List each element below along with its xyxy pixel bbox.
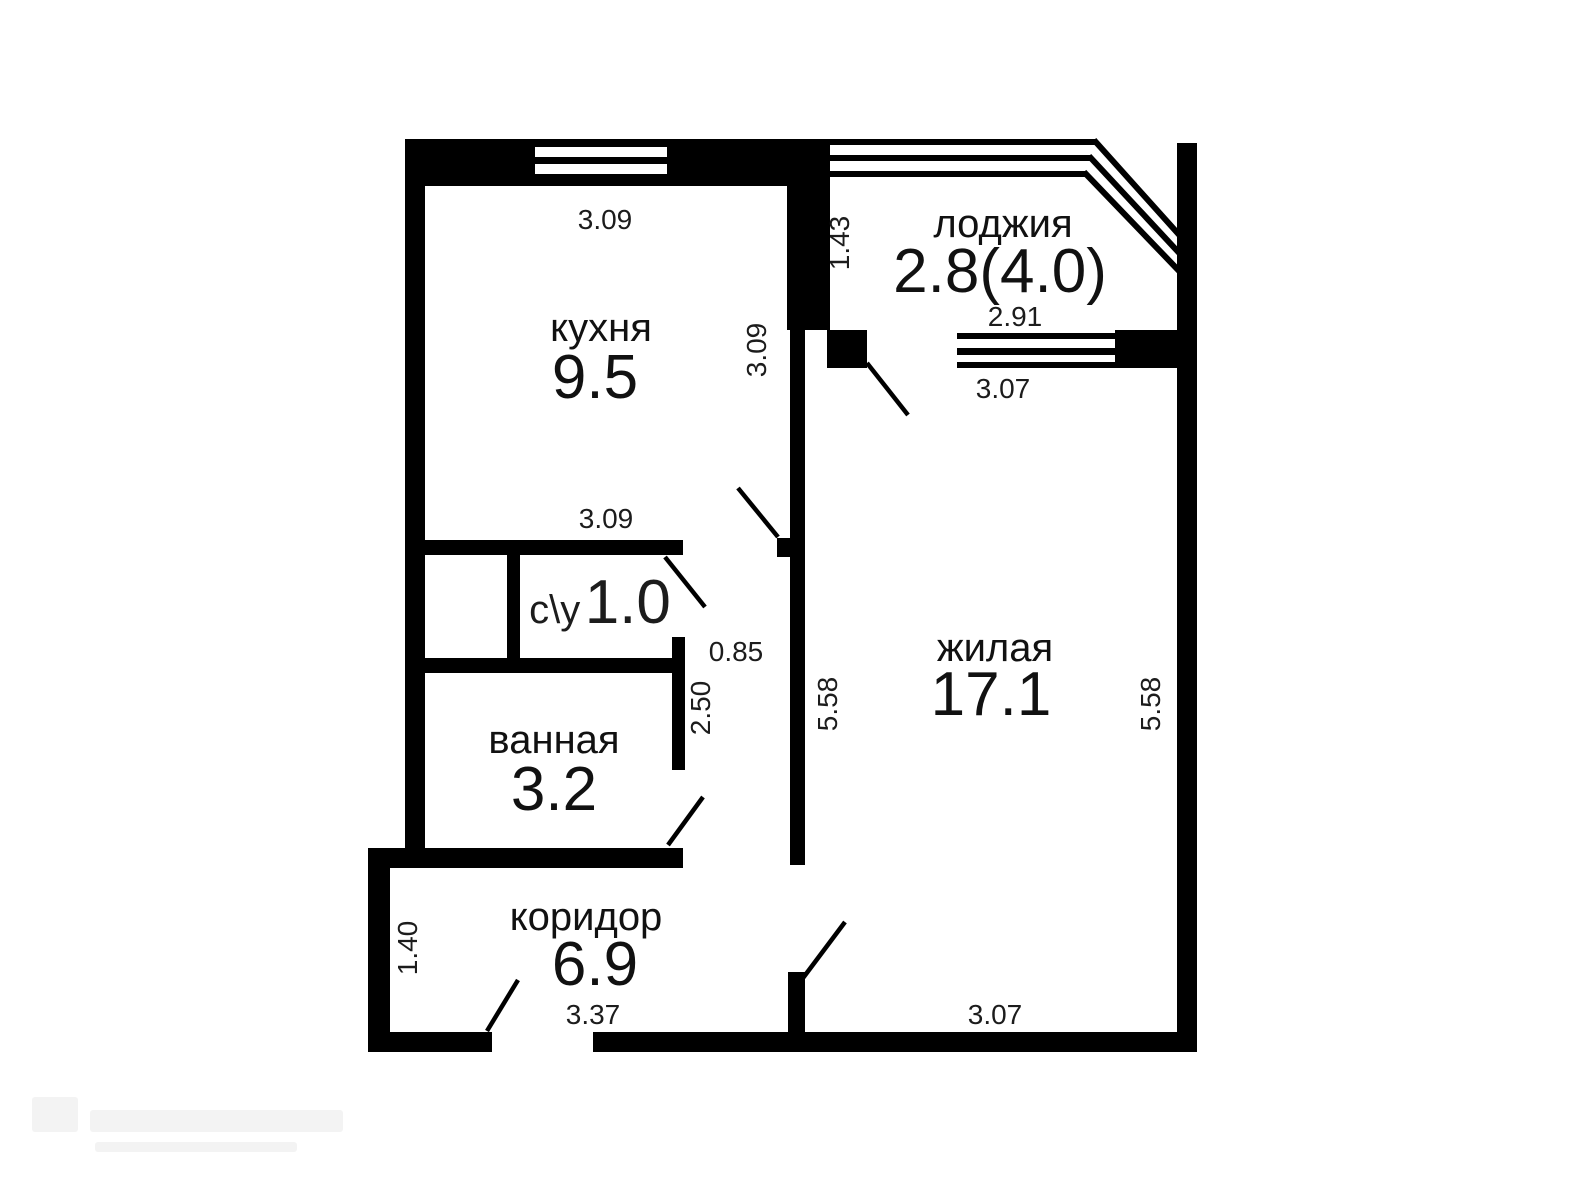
wall-loggia-bottom-right xyxy=(1115,330,1177,368)
loggia-window-pane-line xyxy=(957,348,1115,355)
kitchen-window-pane-line xyxy=(535,157,667,164)
wc-area: 1.0 xyxy=(585,568,671,637)
wall-left-outer xyxy=(405,139,425,852)
wall-corridor-top xyxy=(368,848,683,868)
dim-passage-length: 2.50 xyxy=(687,681,715,736)
bathroom-name: ванная xyxy=(488,720,619,760)
wall-wc-top xyxy=(423,540,683,555)
living-area: 17.1 xyxy=(931,664,1052,726)
watermark-subtitle xyxy=(95,1142,297,1152)
wall-kitchen-living xyxy=(790,330,805,865)
loggia-area: 2.8(4.0) xyxy=(893,241,1107,303)
floor-plan: кухня 9.5 лоджия 2.8(4.0) жилая 17.1 с\у… xyxy=(0,0,1594,1197)
wall-living-door-stub xyxy=(788,972,805,1032)
loggia-glazing-diagonal xyxy=(1094,140,1182,238)
kitchen-window xyxy=(535,139,667,186)
corridor-area: 6.9 xyxy=(552,934,638,996)
wall-right-outer xyxy=(1177,143,1197,1052)
watermark-logo-icon xyxy=(32,1097,78,1132)
living-door-swing xyxy=(803,922,845,978)
wall-top-middle xyxy=(667,139,830,186)
bathroom-area: 3.2 xyxy=(511,759,597,821)
dim-loggia-width: 2.91 xyxy=(988,303,1043,331)
kitchen-area: 9.5 xyxy=(552,347,638,409)
dim-living-width-top: 3.07 xyxy=(976,375,1031,403)
wc-door-swing xyxy=(665,557,705,607)
wc-name: с\у xyxy=(529,588,580,632)
dim-kitchen-height-right: 3.09 xyxy=(743,323,771,378)
kitchen-window-pane-line xyxy=(535,174,667,181)
bathroom-door-swing xyxy=(668,797,703,845)
wall-wc-stub xyxy=(672,637,685,770)
wall-bottom-right xyxy=(593,1032,1197,1052)
watermark-title xyxy=(90,1110,343,1132)
dim-corridor-depth: 1.40 xyxy=(394,921,422,976)
kitchen-door-swing xyxy=(738,488,778,537)
wall-closet-divider xyxy=(507,555,520,658)
dim-living-height-right: 5.58 xyxy=(1137,677,1165,732)
dim-loggia-depth: 1.43 xyxy=(826,216,854,271)
dim-kitchen-width-top: 3.09 xyxy=(578,206,633,234)
dim-corridor-width: 3.37 xyxy=(566,1001,621,1029)
wall-loggia-bottom-left xyxy=(827,330,867,368)
kitchen-name: кухня xyxy=(550,308,652,348)
wall-bathroom-top xyxy=(423,658,672,673)
dim-passage-width: 0.85 xyxy=(709,638,764,666)
dim-living-width-bottom: 3.07 xyxy=(968,1001,1023,1029)
wall-corridor-left xyxy=(368,848,390,1052)
wc-label: с\у 1.0 xyxy=(529,572,671,634)
entrance-door-swing xyxy=(487,980,518,1031)
wall-kitchen-door-stub xyxy=(777,538,792,557)
dim-living-height-left: 5.58 xyxy=(814,677,842,732)
balcony-door-swing xyxy=(867,363,908,415)
dim-wc-width-top: 3.09 xyxy=(579,505,634,533)
loggia-living-window xyxy=(957,333,1115,368)
wall-bottom-left xyxy=(368,1032,492,1052)
